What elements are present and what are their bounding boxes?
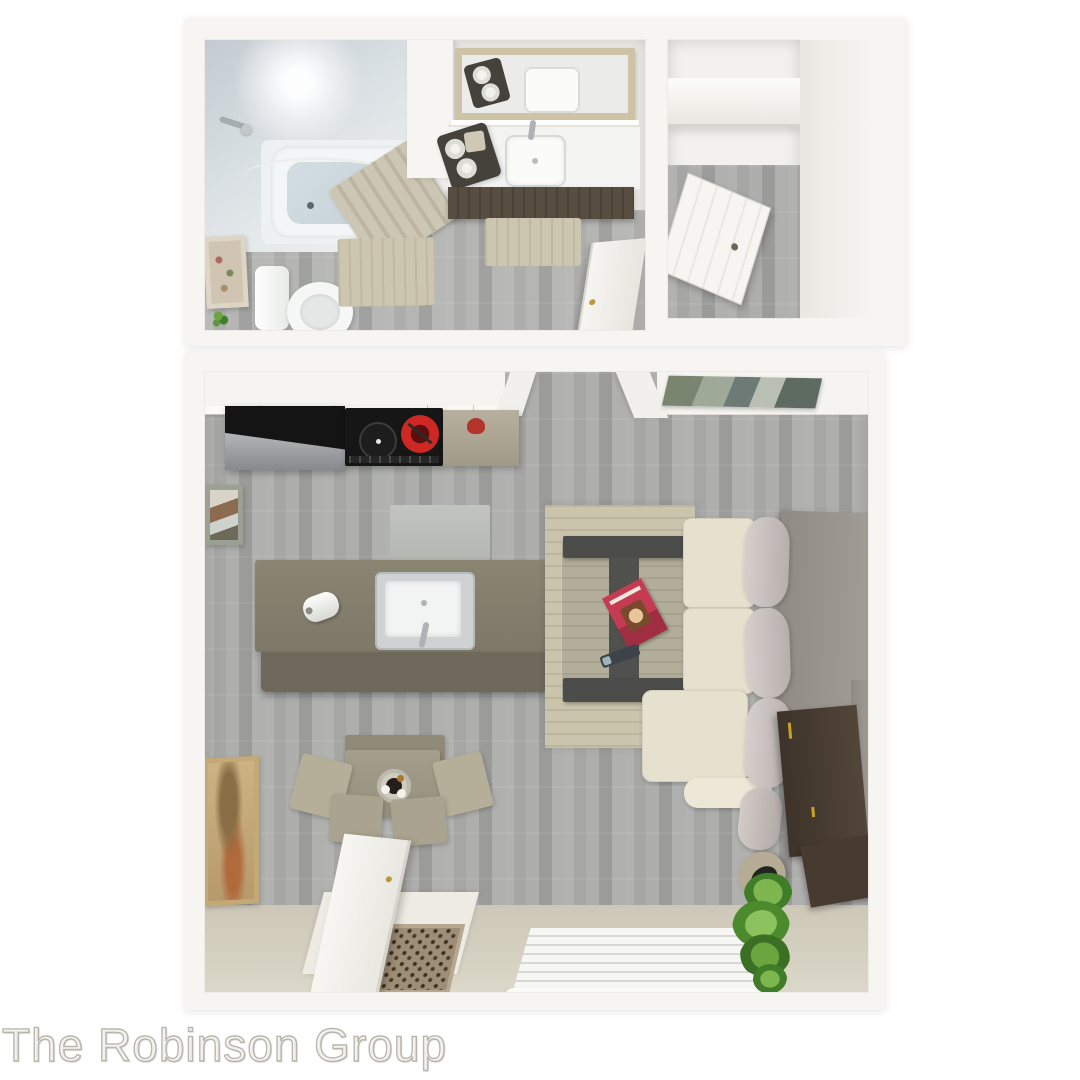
small-wall-art <box>205 485 243 545</box>
small-wall-art-print <box>210 490 238 540</box>
landscape-art <box>662 376 822 409</box>
burner-red-hot <box>401 415 439 453</box>
island-lower-tier <box>261 652 547 692</box>
cooktop-controls <box>349 456 439 463</box>
sofa-back-pillow <box>742 516 790 608</box>
kitchen-mat <box>390 505 490 560</box>
remote-tip <box>602 656 612 666</box>
toilet-paper-roll-2 <box>454 156 479 181</box>
tall-wall-art <box>205 756 259 907</box>
window-sill <box>505 988 773 992</box>
refrigerator-steel-front <box>225 406 345 470</box>
coffee-table-top-bar <box>563 536 685 558</box>
red-kettle <box>467 418 485 434</box>
kitchen-sink <box>375 572 475 650</box>
small-plant <box>211 308 229 328</box>
main-living-section <box>185 352 885 1010</box>
burner-off <box>359 422 397 460</box>
bathroom <box>205 40 645 330</box>
toilet-tank <box>255 266 289 330</box>
paper-towel-core <box>305 606 314 615</box>
vanity-door-knob <box>589 299 596 305</box>
closet-right-wall <box>800 40 880 318</box>
tall-wall-art-print <box>208 761 254 901</box>
window-blinds <box>513 928 765 990</box>
living-interior <box>205 372 868 992</box>
console-handle-gold-2 <box>811 807 815 817</box>
toilet-seat <box>300 294 340 330</box>
fruit-gold <box>397 775 404 782</box>
shower-head <box>241 124 252 135</box>
closet-shelf <box>668 78 800 126</box>
vanity-mirror <box>455 48 635 120</box>
entry-door-hinge <box>385 876 392 882</box>
mirror-reflection-basket <box>463 57 511 109</box>
mirror-glass <box>462 55 628 113</box>
fruit-white <box>381 785 390 794</box>
tub-drain <box>307 202 314 209</box>
mirror-reflection-roll-2 <box>480 81 502 103</box>
mirror-reflection-sink <box>524 67 580 113</box>
closet <box>668 40 800 318</box>
sofa-back-pillow-4 <box>736 786 784 852</box>
bathroom-wall-art-print <box>208 240 243 304</box>
bath-rug <box>337 237 434 307</box>
plant-foliage-4 <box>753 964 787 992</box>
fruit-white-2 <box>397 789 406 798</box>
burner-grate-bar <box>408 423 433 445</box>
burner-center-dot <box>376 439 381 444</box>
vanity-sink <box>505 135 566 187</box>
vanity-sink-drain <box>532 158 538 164</box>
sofa-back-pillow-2 <box>743 607 791 699</box>
magazine-photo <box>619 599 652 633</box>
closet-door-knob <box>730 242 739 251</box>
bathroom-wall-art <box>205 235 249 309</box>
vanity-rug <box>485 218 581 266</box>
kitchen-counter <box>443 410 519 466</box>
basket-towel <box>464 130 487 153</box>
vanity-cabinet <box>448 187 634 219</box>
media-console <box>777 705 868 857</box>
floorplan-canvas: The Robinson Group <box>0 0 1080 1080</box>
refrigerator <box>225 406 345 470</box>
sofa-chaise-cushion <box>642 690 748 782</box>
cooktop <box>345 408 443 466</box>
media-console-lower <box>800 834 868 908</box>
bath-suite-section <box>185 18 907 346</box>
kitchen-sink-drain <box>421 600 427 606</box>
console-handle-gold <box>788 723 792 739</box>
watermark-text: The Robinson Group <box>2 1018 447 1072</box>
